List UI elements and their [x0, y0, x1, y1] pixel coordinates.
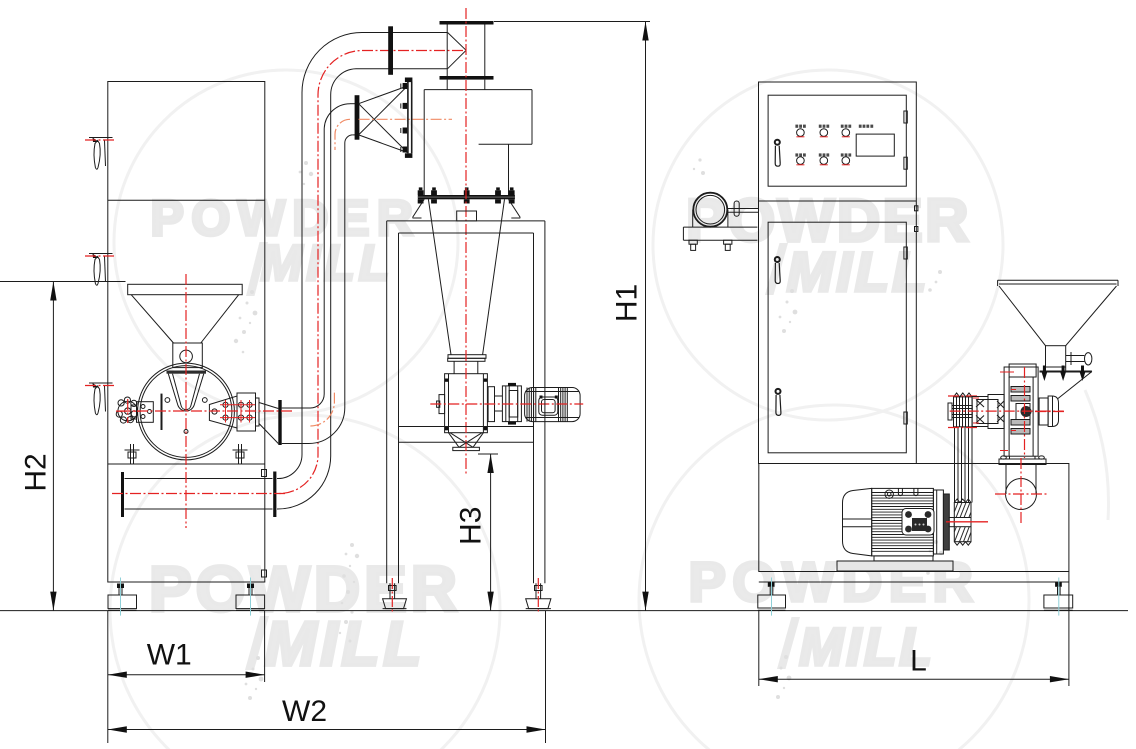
- svg-text:W2: W2: [282, 695, 327, 728]
- svg-text:L: L: [910, 645, 927, 678]
- svg-text:MILL: MILL: [787, 240, 930, 303]
- svg-text:MILL: MILL: [261, 235, 394, 291]
- svg-text:H1: H1: [610, 284, 643, 322]
- svg-text:H3: H3: [455, 507, 488, 545]
- svg-text:H2: H2: [20, 453, 53, 491]
- svg-text:W1: W1: [147, 639, 192, 672]
